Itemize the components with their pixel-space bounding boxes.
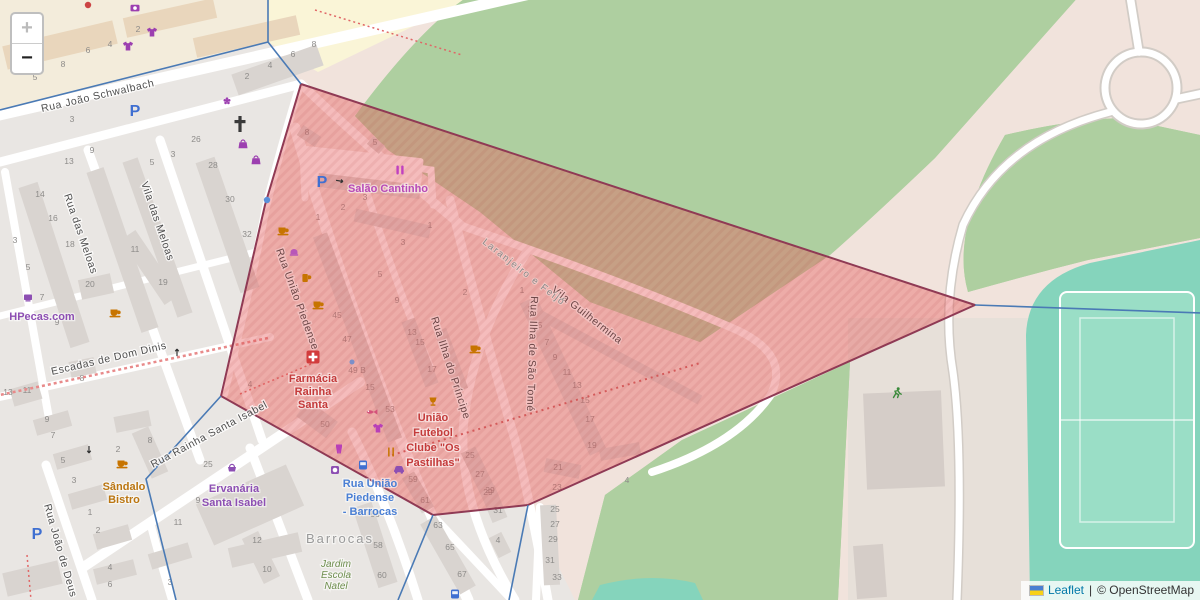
house-number: 2 [116,444,121,454]
poi-label-farmacia: Rainha [295,386,333,398]
house-number: 7 [40,292,45,302]
camera-shop-icon [131,5,140,12]
house-number: 67 [457,569,467,579]
house-number: 5 [26,262,31,272]
house-number: 9 [196,495,201,505]
house-number: 8 [61,59,66,69]
poi-label-bus-stop: Piedense [346,492,394,504]
poi-dot-icon [85,2,91,8]
poi-label-clube: União [418,412,449,424]
poi-label-sandalo: Sândalo [103,481,146,493]
house-number: 3 [70,114,75,124]
house-number: 2 [136,24,141,34]
house-number: 4 [625,475,630,485]
house-number: 16 [48,213,58,223]
poi-label-clube: Clube "Os [406,442,460,454]
house-number: 6 [108,579,113,589]
house-number: 29 [548,534,558,544]
house-number: 4 [496,535,501,545]
poi-label-hpecas: HPecas.com [9,311,75,323]
house-number: 4 [108,562,113,572]
cafe-icon [313,302,324,310]
house-number: 6 [86,45,91,55]
house-number: 14 [35,189,45,199]
house-number: 3 [171,149,176,159]
house-number: 58 [373,540,383,550]
house-number: 4 [108,39,113,49]
ukraine-flag-icon [1029,585,1044,596]
drinking-water-icon [264,197,270,203]
house-number: 25 [550,504,560,514]
cafe-icon [110,310,121,318]
house-number: 11 [131,244,140,254]
leaflet-link[interactable]: Leaflet [1048,583,1084,597]
poi-label-jardim: Jardim [320,559,351,570]
poi-label-bus-stop: - Barrocas [343,506,397,518]
house-number: 18 [65,239,75,249]
house-number: 32 [242,229,252,239]
attribution-separator: | [1089,583,1092,597]
parking-symbol: P [317,174,328,191]
house-number: 5 [150,157,155,167]
house-number: 9 [45,414,50,424]
house-number: 28 [208,160,218,170]
pharmacy-icon [307,351,320,364]
parking-symbol: P [130,103,141,120]
house-number: 12 [252,535,262,545]
house-number: 7 [51,430,56,440]
bus-stop-icon [451,590,459,599]
poi-label-farmacia: Farmácia [289,373,338,385]
poi-label-farmacia: Santa [298,399,329,411]
house-number: 31 [545,555,555,565]
poi-label-bus-stop: Rua União [343,478,398,490]
poi-dot-icon [350,360,355,365]
poi-label-jardim: Escola [321,570,351,581]
house-number: 33 [552,572,562,582]
house-number: 25 [203,459,213,469]
cafe-icon [278,228,289,236]
house-number: 3 [72,475,77,485]
house-number: 20 [85,279,95,289]
house-number: 1 [88,507,93,517]
leaflet-map[interactable]: 5864232624689135314161835201119792830328… [0,0,1200,600]
cafe-icon [117,461,128,469]
house-number: 9 [90,145,95,155]
house-number: 27 [550,519,560,529]
hamlet-label-barrocas: Barrocas [306,531,374,546]
map-canvas: 5864232624689135314161835201119792830328… [0,0,1200,600]
poi-label-jardim: Natel [324,581,348,592]
house-number: 19 [158,277,168,287]
osm-credit: © OpenStreetMap [1097,583,1194,597]
house-number: 10 [262,564,272,574]
poi-label-sandalo: Bistro [108,494,140,506]
house-number: 8 [148,435,153,445]
poi-label-salao-cantinho: Salão Cantinho [348,183,428,195]
house-number: 6 [291,49,296,59]
poi-label-clube: Futebol [413,427,453,439]
bus-stop-icon [359,461,367,470]
house-number: 3 [13,235,18,245]
house-number: 8 [312,39,317,49]
house-number: 2 [96,525,101,535]
cafe-icon [470,346,481,354]
house-number: 4 [268,60,273,70]
house-number: 5 [61,455,66,465]
house-number: 63 [433,520,443,530]
zoom-in-button[interactable]: + [12,14,42,44]
house-number: 26 [191,134,201,144]
house-number: 65 [445,542,455,552]
poi-label-ervanaria: Santa Isabel [202,497,266,509]
house-number: 2 [245,71,250,81]
house-number: 60 [377,570,387,580]
zoom-control: + − [10,12,44,75]
house-number: 30 [225,194,235,204]
car-wash-icon [331,466,339,474]
zoom-out-button[interactable]: − [12,44,42,73]
attribution-bar: Leaflet | © OpenStreetMap [1021,581,1200,600]
house-number: 11 [174,517,183,527]
poi-label-clube: Pastilhas" [406,457,460,469]
house-number: 13 [64,156,74,166]
parking-symbol: P [32,526,43,543]
poi-label-ervanaria: Ervanária [209,483,260,495]
